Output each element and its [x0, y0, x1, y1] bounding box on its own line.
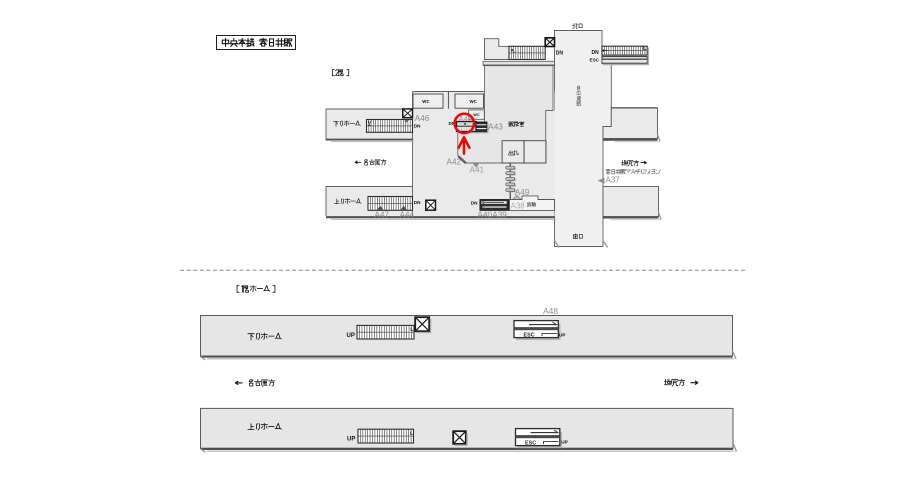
- svg-text:UP: UP: [561, 440, 568, 446]
- svg-text:A47: A47: [375, 210, 390, 219]
- svg-text:DN: DN: [414, 200, 421, 205]
- svg-text:WC: WC: [422, 99, 430, 104]
- svg-text:ESC: ESC: [590, 57, 600, 62]
- svg-text:ESC: ESC: [525, 440, 536, 446]
- svg-text:WC: WC: [473, 113, 480, 117]
- svg-text:A46: A46: [415, 114, 430, 123]
- svg-text:DN: DN: [556, 51, 564, 57]
- svg-text:A38: A38: [511, 201, 526, 210]
- svg-text:UP: UP: [347, 437, 355, 443]
- svg-text:A41: A41: [470, 166, 485, 175]
- svg-text:DN: DN: [471, 201, 478, 206]
- svg-text:DN: DN: [592, 50, 600, 56]
- svg-text:ESC: ESC: [524, 332, 535, 338]
- svg-text:DN: DN: [414, 123, 421, 128]
- svg-text:UP: UP: [559, 333, 566, 339]
- svg-text:A44: A44: [400, 210, 415, 219]
- svg-text:A42: A42: [447, 158, 462, 167]
- svg-text:A37: A37: [606, 176, 621, 185]
- svg-text:A48: A48: [543, 306, 558, 316]
- svg-text:A39: A39: [492, 210, 507, 219]
- svg-text:A40: A40: [478, 210, 493, 219]
- svg-text:UP: UP: [347, 333, 355, 339]
- svg-text:WC: WC: [470, 99, 478, 104]
- svg-text:A43: A43: [488, 123, 503, 132]
